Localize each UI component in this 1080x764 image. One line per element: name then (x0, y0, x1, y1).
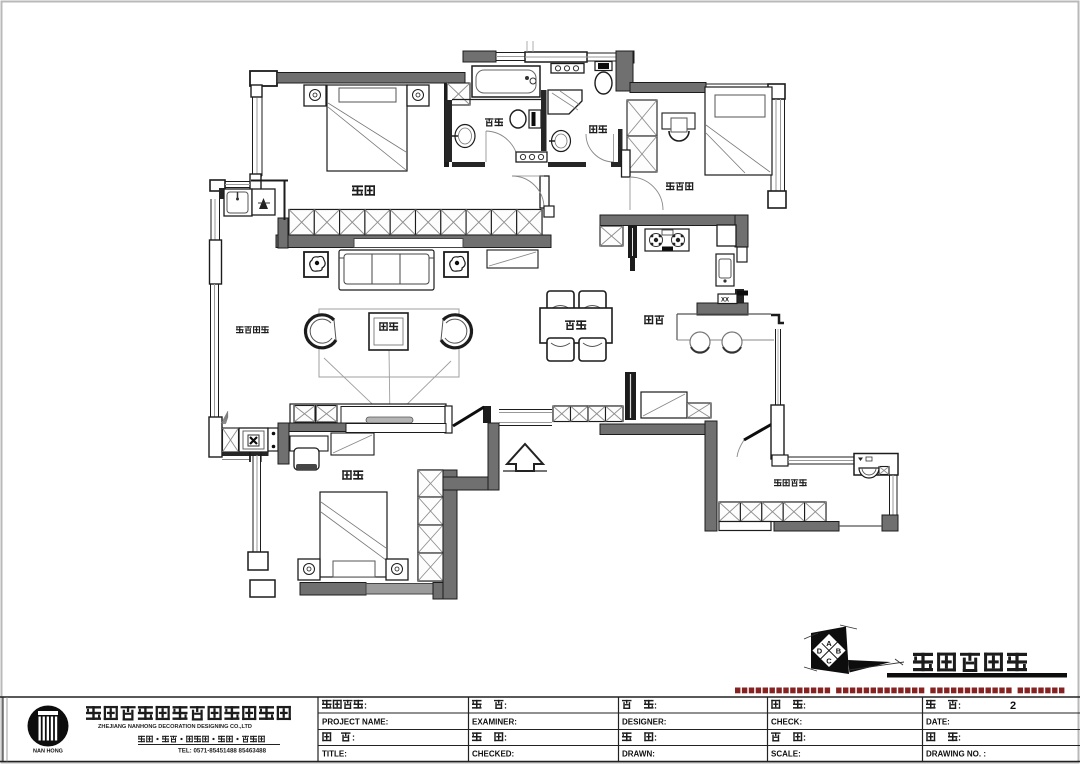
svg-text::: : (803, 733, 806, 743)
svg-text:CHECKED:: CHECKED: (472, 750, 514, 759)
svg-text:SCALE:: SCALE: (771, 750, 801, 759)
svg-text::: : (803, 701, 806, 711)
svg-text:B: B (836, 647, 842, 656)
svg-text::: : (504, 701, 507, 711)
svg-text:D: D (817, 647, 823, 656)
svg-text::: : (364, 701, 367, 711)
svg-text:A: A (826, 639, 832, 648)
svg-text:NAN HONG: NAN HONG (33, 749, 63, 755)
svg-text:ZHEJIANG NANHONG DECORATION DE: ZHEJIANG NANHONG DECORATION DESIGNING CO… (98, 724, 252, 730)
svg-text::: : (654, 701, 657, 711)
svg-text:2: 2 (1010, 700, 1016, 712)
svg-text:TITLE:: TITLE: (322, 750, 347, 759)
svg-text:DATE:: DATE: (926, 718, 950, 727)
svg-text:DRAWING NO. :: DRAWING NO. : (926, 750, 986, 759)
svg-text::: : (958, 701, 961, 711)
svg-text:PROJECT NAME:: PROJECT NAME: (322, 718, 388, 727)
svg-text::: : (958, 733, 961, 743)
svg-text:DRAWN:: DRAWN: (622, 750, 655, 759)
svg-text:EXAMINER:: EXAMINER: (472, 718, 517, 727)
svg-text::: : (352, 733, 355, 743)
svg-text:XX: XX (721, 298, 729, 304)
svg-text:DESIGNER:: DESIGNER: (622, 718, 666, 727)
svg-text::: : (654, 733, 657, 743)
svg-text:TEL: 0571-85451488 85463488: TEL: 0571-85451488 85463488 (178, 748, 267, 755)
svg-text:CHECK:: CHECK: (771, 718, 802, 727)
svg-text::: : (504, 733, 507, 743)
svg-text:C: C (826, 657, 832, 666)
